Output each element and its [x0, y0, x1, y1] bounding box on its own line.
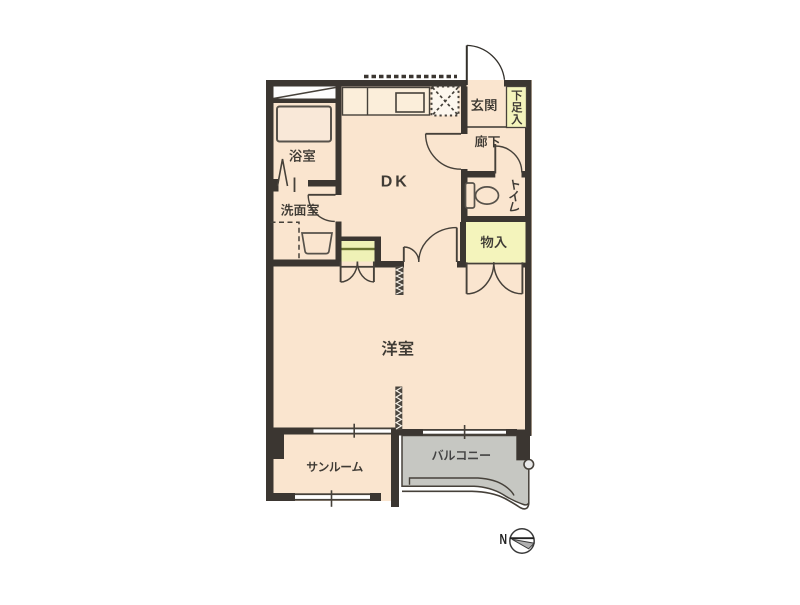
svg-text:N: N — [500, 532, 508, 548]
svg-text:DK: DK — [381, 174, 410, 191]
